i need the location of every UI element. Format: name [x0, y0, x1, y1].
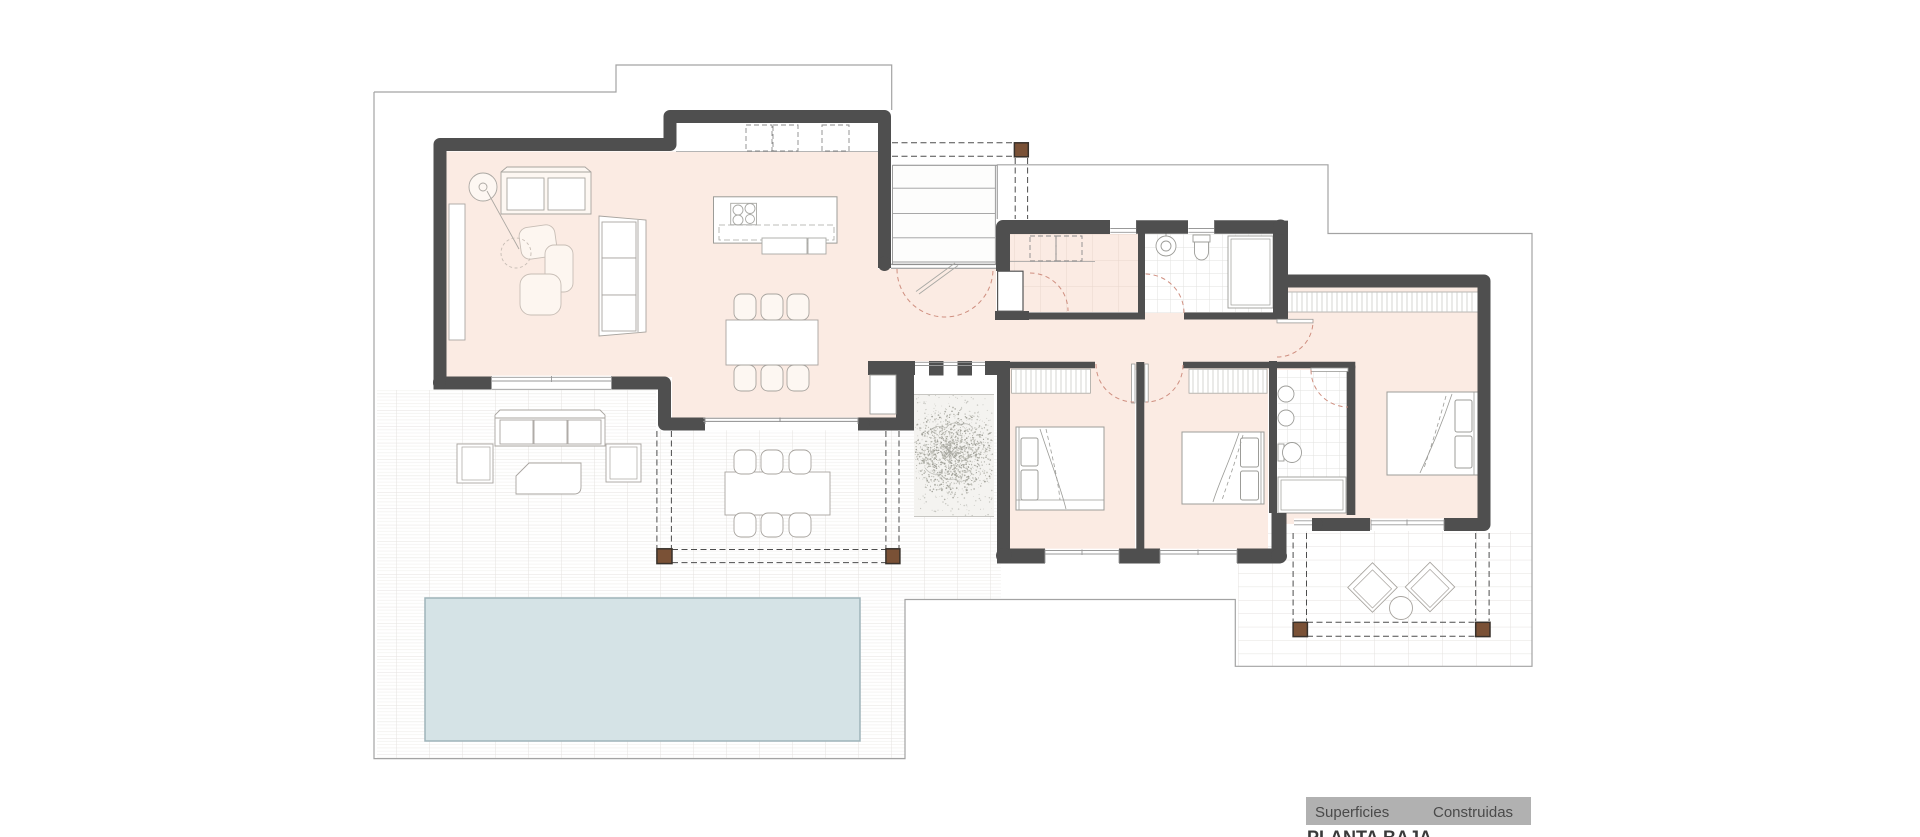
svg-text:Construidas: Construidas: [1433, 804, 1513, 821]
svg-text:Superficies: Superficies: [1315, 804, 1389, 821]
svg-text:PLANTA BAJA: PLANTA BAJA: [1307, 828, 1432, 837]
